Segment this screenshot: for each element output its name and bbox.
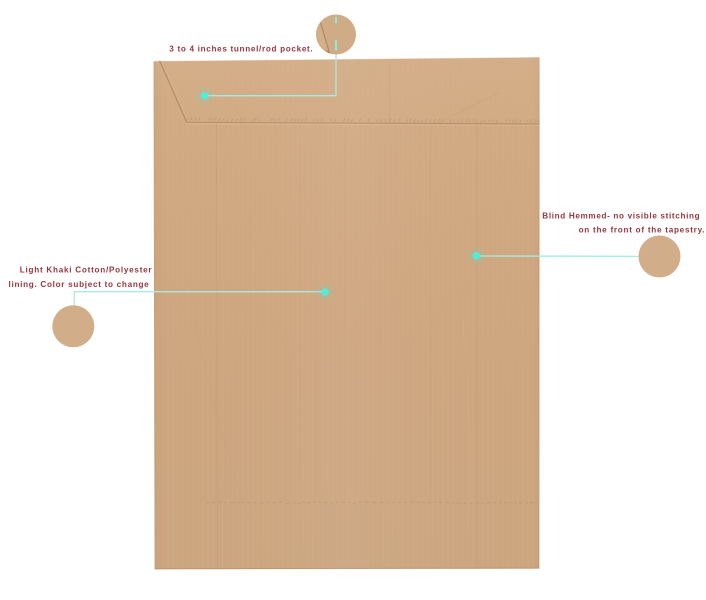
svg-text:Blind Hemmed- no visible stitc: Blind Hemmed- no visible stitching (542, 212, 699, 221)
svg-text:on the front of the tapestry.: on the front of the tapestry. (579, 226, 705, 235)
svg-text:Light Khaki Cotton/Polyester: Light Khaki Cotton/Polyester (20, 265, 153, 274)
svg-text:lining. Color subject to chang: lining. Color subject to change (9, 280, 150, 289)
svg-text:3 to 4 inches tunnel/rod pocke: 3 to 4 inches tunnel/rod pocket. (169, 44, 312, 53)
